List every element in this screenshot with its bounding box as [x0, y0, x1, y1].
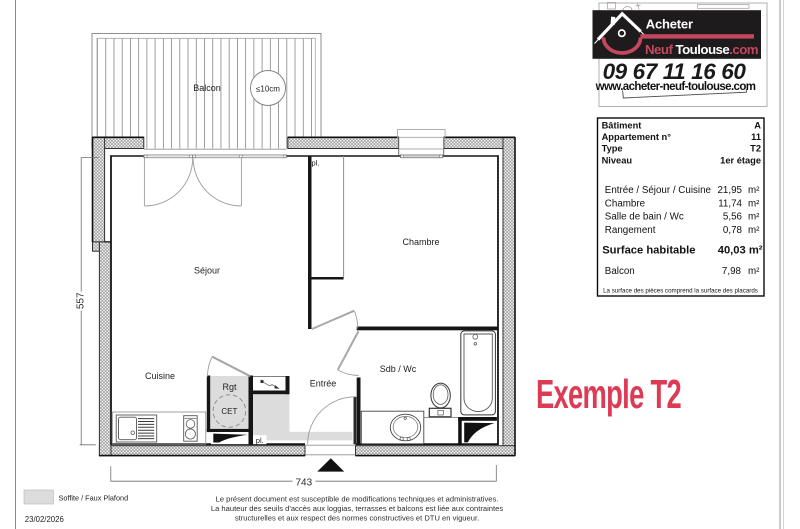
svg-text:Le présent document est suscep: Le présent document est susceptible de m…	[216, 495, 499, 504]
svg-text:Neuf Toulouse.com: Neuf Toulouse.com	[645, 42, 758, 57]
svg-text:Séjour: Séjour	[194, 266, 220, 276]
svg-text:557: 557	[76, 292, 87, 309]
svg-text:Bâtiment: Bâtiment	[602, 120, 642, 130]
svg-text:11,74: 11,74	[718, 198, 742, 209]
svg-text:Rgt: Rgt	[222, 382, 237, 392]
svg-text:Salle de bain / Wc: Salle de bain / Wc	[605, 212, 684, 223]
svg-text:A: A	[754, 120, 761, 130]
svg-text:m²: m²	[748, 185, 760, 196]
svg-text:Acheter: Acheter	[646, 17, 693, 32]
svg-text:1er étage: 1er étage	[720, 155, 761, 165]
svg-text:Cuisine: Cuisine	[145, 371, 175, 381]
svg-text:Rangement: Rangement	[605, 225, 656, 236]
svg-text:structurelles et aux respect d: structurelles et aux respect des normes …	[235, 514, 479, 523]
svg-text:T2: T2	[750, 144, 761, 154]
svg-text:23/02/2026: 23/02/2026	[25, 515, 64, 524]
svg-text:7,98: 7,98	[722, 266, 742, 277]
svg-text:Balcon: Balcon	[605, 266, 635, 277]
svg-text:Balcon: Balcon	[193, 83, 221, 93]
svg-text:11: 11	[751, 132, 761, 142]
svg-text:743: 743	[295, 477, 312, 488]
svg-text:m²: m²	[748, 198, 760, 209]
svg-text:Chambre: Chambre	[605, 198, 646, 209]
svg-text:Soffite / Faux Plafond: Soffite / Faux Plafond	[59, 493, 129, 502]
svg-text:pl.: pl.	[256, 436, 264, 445]
svg-text:m²: m²	[748, 212, 760, 223]
svg-text:m²: m²	[748, 266, 760, 277]
svg-text:Appartement n°: Appartement n°	[602, 132, 672, 142]
svg-text:Exemple T2: Exemple T2	[536, 371, 681, 417]
svg-text:Sdb / Wc: Sdb / Wc	[380, 364, 417, 374]
svg-text:La hauteur des seuils d'accès: La hauteur des seuils d'accès aux loggia…	[211, 504, 503, 513]
svg-text:La surface des pièces comprend: La surface des pièces comprend la surfac…	[603, 288, 758, 295]
svg-text:Entrée: Entrée	[310, 378, 337, 388]
svg-text:40,03 m²: 40,03 m²	[718, 245, 763, 257]
svg-text:CET: CET	[221, 407, 237, 416]
svg-text:Type: Type	[602, 144, 623, 154]
svg-text:Chambre: Chambre	[402, 237, 439, 247]
svg-text:0,78: 0,78	[723, 225, 743, 236]
svg-text:21,95: 21,95	[717, 185, 742, 196]
svg-text:pl.: pl.	[312, 159, 320, 168]
svg-text:Niveau: Niveau	[602, 155, 633, 165]
svg-text:≤10cm: ≤10cm	[256, 84, 280, 93]
svg-text:Surface habitable: Surface habitable	[602, 245, 695, 257]
svg-text:m²: m²	[748, 225, 760, 236]
svg-text:5,56: 5,56	[723, 212, 743, 223]
svg-text:Entrée / Séjour / Cuisine: Entrée / Séjour / Cuisine	[605, 185, 712, 196]
svg-text:www.acheter-neuf-toulouse.com: www.acheter-neuf-toulouse.com	[595, 81, 756, 93]
